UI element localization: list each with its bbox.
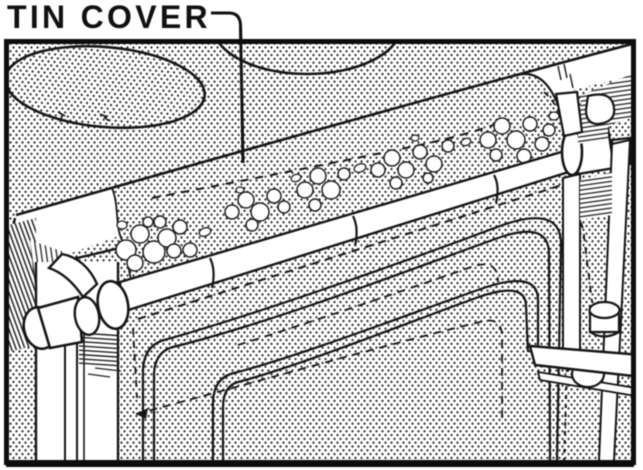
svg-text:TIN COVER: TIN COVER xyxy=(7,0,211,35)
